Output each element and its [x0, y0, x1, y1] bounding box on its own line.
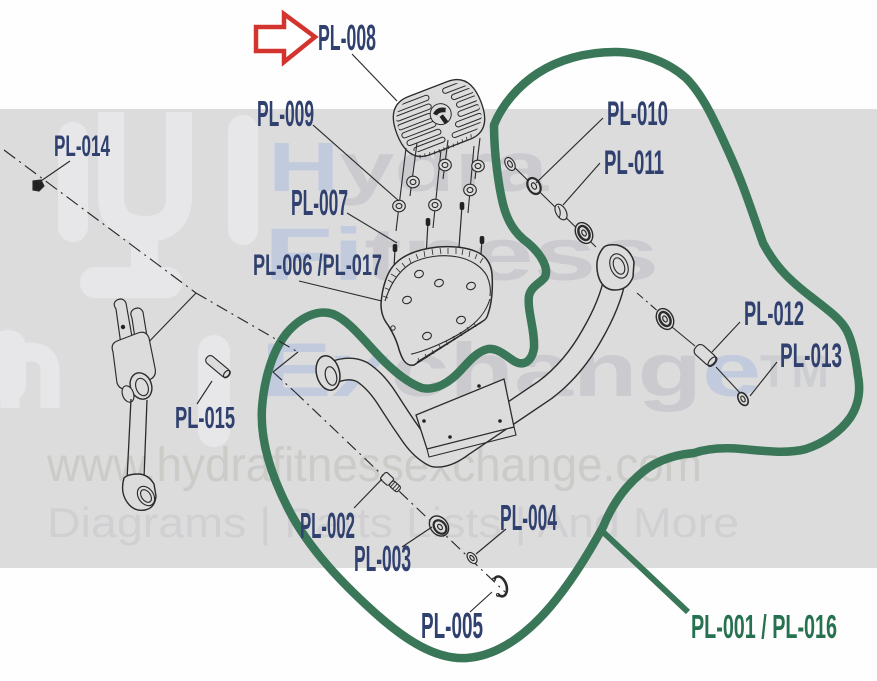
svg-text:PL-007: PL-007 [291, 182, 348, 223]
svg-text:PL-015: PL-015 [175, 400, 235, 435]
svg-text:PL-009: PL-009 [257, 93, 314, 134]
svg-text:PL-008: PL-008 [318, 17, 376, 58]
svg-text:PL-001 / PL-016: PL-001 / PL-016 [691, 608, 837, 645]
svg-text:PL-014: PL-014 [54, 130, 110, 163]
svg-text:PL-005: PL-005 [421, 605, 483, 646]
svg-text:PL-003: PL-003 [354, 538, 411, 579]
svg-text:Hydra Fitness: Hydra Fitness [150, 670, 750, 681]
svg-text:PL-013: PL-013 [780, 337, 842, 375]
svg-text:PL-006 /PL-017: PL-006 /PL-017 [253, 249, 382, 282]
svg-text:PL-011: PL-011 [604, 144, 664, 182]
svg-text:PL-002: PL-002 [300, 505, 355, 546]
svg-text:PL-004: PL-004 [500, 497, 557, 538]
svg-text:PL-012: PL-012 [744, 295, 804, 333]
svg-text:PL-010: PL-010 [607, 95, 668, 133]
